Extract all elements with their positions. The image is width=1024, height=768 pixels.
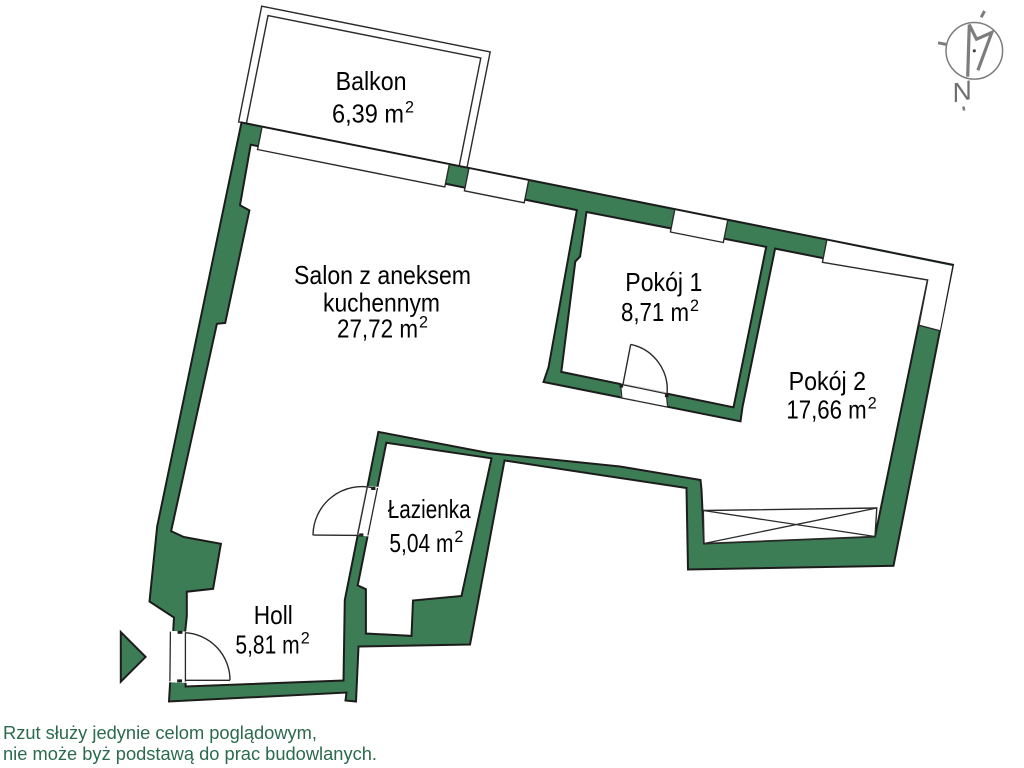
svg-text:27,72 m: 27,72 m xyxy=(337,314,418,344)
svg-text:2: 2 xyxy=(690,296,699,315)
svg-text:17,66 m: 17,66 m xyxy=(786,395,866,425)
svg-text:2: 2 xyxy=(405,98,414,117)
svg-text:5,04 m: 5,04 m xyxy=(389,528,453,558)
svg-text:2: 2 xyxy=(419,313,428,332)
svg-text:2: 2 xyxy=(454,527,463,546)
svg-text:Balkon: Balkon xyxy=(336,66,407,96)
svg-text:Rzut służy jedynie celom poglą: Rzut służy jedynie celom poglądowym, xyxy=(3,722,317,743)
svg-text:5,81 m: 5,81 m xyxy=(235,630,299,660)
svg-text:nie może byż podstawą do prac: nie może byż podstawą do prac budowlanyc… xyxy=(3,743,377,764)
svg-text:Salon z aneksem: Salon z aneksem xyxy=(294,260,471,290)
svg-text:Holl: Holl xyxy=(254,600,293,630)
svg-text:8,71 m: 8,71 m xyxy=(621,297,689,327)
svg-text:Pokój 2: Pokój 2 xyxy=(789,366,866,396)
svg-text:2: 2 xyxy=(301,629,310,648)
svg-text:2: 2 xyxy=(868,394,877,413)
svg-text:Łazienka: Łazienka xyxy=(388,494,471,524)
svg-text:6,39 m: 6,39 m xyxy=(332,99,404,129)
svg-text:Pokój 1: Pokój 1 xyxy=(625,267,702,297)
